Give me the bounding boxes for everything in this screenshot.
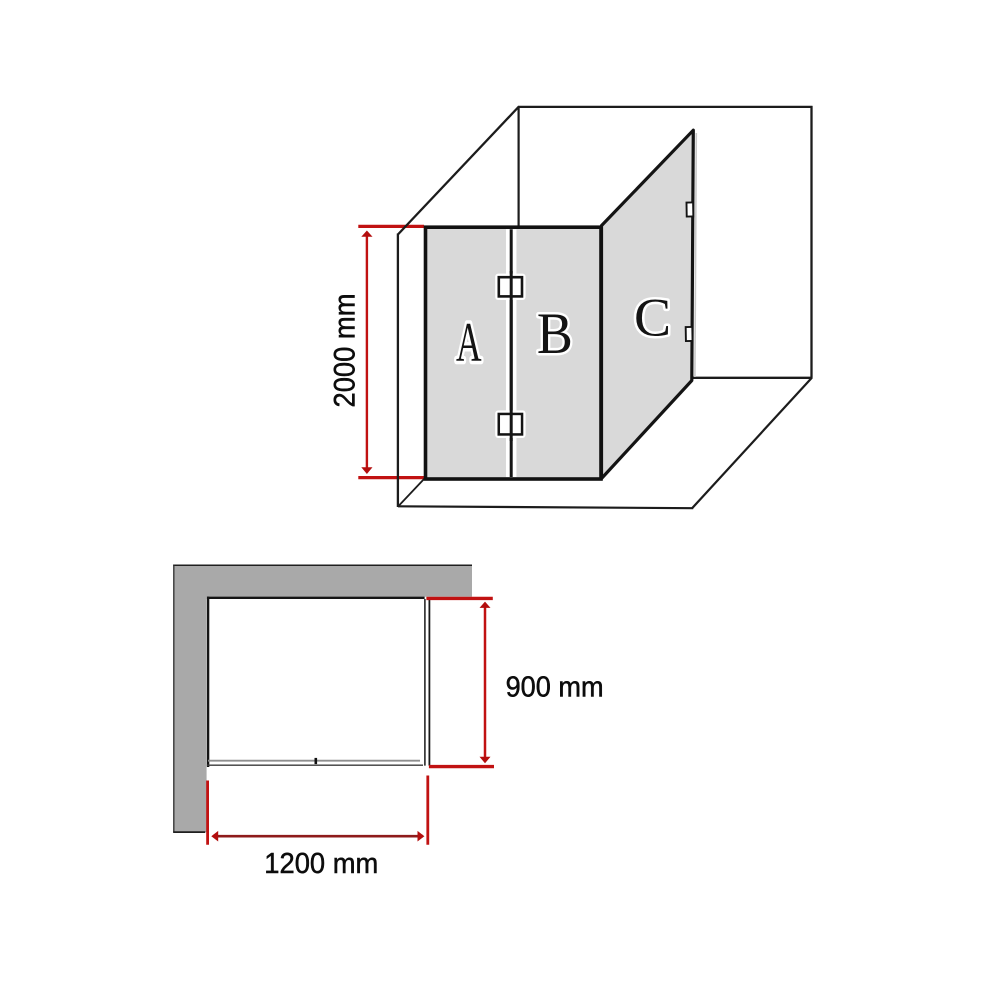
svg-text:A: A (456, 312, 482, 374)
svg-text:2000 mm: 2000 mm (329, 294, 362, 408)
svg-text:C: C (634, 287, 671, 347)
svg-text:1200 mm: 1200 mm (264, 848, 378, 880)
svg-text:B: B (537, 302, 573, 366)
svg-text:900 mm: 900 mm (506, 672, 604, 704)
